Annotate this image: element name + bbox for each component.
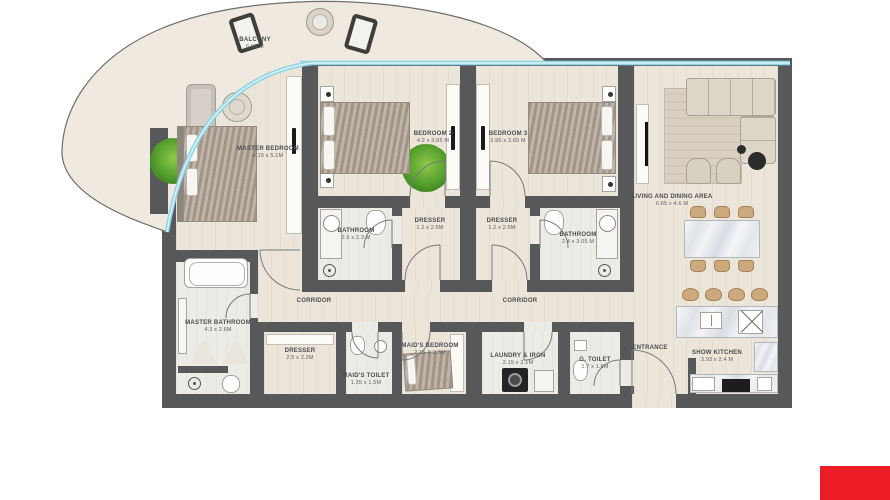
g-toilet-label: G. TOILET1.7 x 1.6M xyxy=(548,356,642,370)
corridor-label: CORRIDOR xyxy=(267,297,361,305)
maids-toilet-label: MAID'S TOILET1.35 x 1.5M xyxy=(319,372,413,386)
floor-plan: BALCONY6.56 M MASTER BEDROOM4.15 x 5.1M … xyxy=(0,0,890,500)
master-bedroom-label: MASTER BEDROOM4.15 x 5.1M xyxy=(221,145,315,159)
door-arc xyxy=(226,294,250,318)
brand-red-block xyxy=(820,466,890,500)
door-arc xyxy=(410,161,445,196)
glazing-and-doors-layer xyxy=(0,0,890,500)
show-kitchen-label: SHOW KITCHEN3.93 x 2.4 M xyxy=(670,349,764,363)
balcony-label: BALCONY6.56 M xyxy=(208,36,302,50)
bathroom3-label: BATHROOM2.4 x 3.05 M xyxy=(531,231,625,245)
master-bathroom-label: MASTER BATHROOM4.3 x 2.6M xyxy=(171,319,265,333)
dresser3-label: DRESSER1.2 x 2.6M xyxy=(455,217,549,231)
corridor-label: CORRIDOR xyxy=(473,297,567,305)
door-arc xyxy=(405,245,440,280)
door-arc xyxy=(260,250,300,290)
maids-bedroom-label: MAID'S BEDROOM2.15 X 2.3M xyxy=(383,342,477,356)
living-dining-label: LIVING AND DINING AREA6.65 x 4.6 M xyxy=(625,193,719,207)
door-arc xyxy=(352,332,378,358)
bedroom3-label: BEDROOM 33.95 x 3.65 M xyxy=(461,130,555,144)
door-arc xyxy=(490,161,525,196)
dresser-master-label: DRESSER2.5 x 2.2M xyxy=(253,347,347,361)
door-arc xyxy=(492,245,527,280)
